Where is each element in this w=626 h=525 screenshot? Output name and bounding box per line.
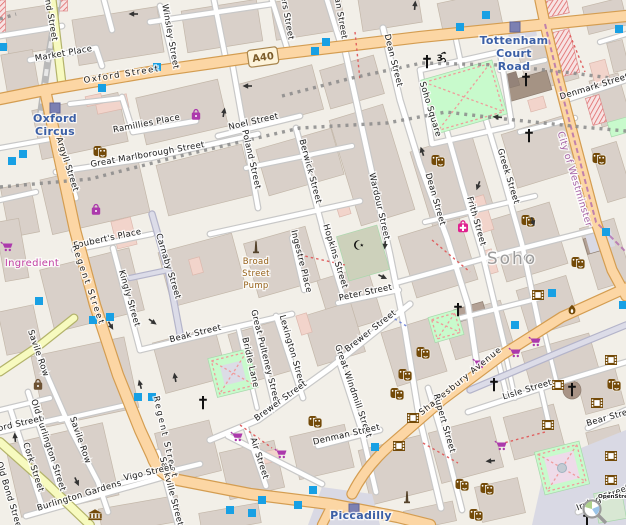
sprocket: [543, 424, 545, 426]
wheel: [235, 439, 237, 441]
sprocket: [606, 356, 608, 358]
film-frame: [608, 357, 613, 363]
sprocket: [403, 445, 405, 447]
sprocket: [533, 294, 535, 296]
film-frame: [608, 477, 613, 483]
eye: [490, 487, 492, 489]
sprocket: [403, 448, 405, 450]
entrance-marker: [602, 228, 610, 236]
eye: [573, 259, 575, 261]
sprocket: [562, 384, 564, 386]
sprocket: [606, 479, 608, 481]
entrance-marker: [258, 496, 266, 504]
eye: [405, 373, 407, 375]
sprocket: [394, 448, 396, 450]
eye: [100, 150, 102, 152]
eye: [594, 155, 596, 157]
cinema-icon: [532, 290, 544, 300]
cinema-icon: [393, 441, 405, 451]
sprocket: [408, 417, 410, 419]
entrance-marker: [619, 301, 626, 309]
sprocket: [408, 414, 410, 416]
cinema-icon: [542, 420, 554, 430]
eye: [423, 351, 425, 353]
eye: [602, 157, 604, 159]
cinema-icon: [605, 475, 617, 485]
sprocket: [417, 414, 419, 416]
eye: [310, 418, 312, 420]
wheel: [499, 448, 501, 450]
wheel: [239, 439, 241, 441]
eye: [400, 371, 402, 373]
sprocket: [417, 420, 419, 422]
sprocket: [606, 476, 608, 478]
eye: [95, 148, 97, 150]
wheel: [503, 448, 505, 450]
base: [253, 252, 259, 254]
wheel: [279, 456, 281, 458]
column: [97, 514, 99, 518]
bag-dot: [37, 385, 39, 387]
sprocket: [606, 455, 608, 457]
osm-map[interactable]: 3A40Market PlaceOxford StreetWinsley Str…: [0, 0, 626, 525]
cinema-icon: [407, 413, 419, 423]
column: [90, 514, 92, 518]
entrance-marker: [456, 23, 464, 31]
cinema-icon: [591, 398, 603, 408]
sprocket: [542, 291, 544, 293]
entrance-marker: [548, 289, 556, 297]
entrance-marker: [19, 150, 27, 158]
pri-road: [540, 0, 545, 24]
sprocket: [615, 359, 617, 361]
sprocket: [552, 424, 554, 426]
film-frame: [545, 422, 550, 428]
shop-label: Ingredient: [5, 258, 59, 269]
entrance-marker: [322, 38, 330, 46]
wheel: [533, 344, 535, 346]
sprocket: [615, 455, 617, 457]
eye: [465, 483, 467, 485]
wheel: [517, 355, 519, 357]
bag-dot: [95, 210, 97, 212]
sprocket: [606, 362, 608, 364]
sprocket: [543, 427, 545, 429]
entrance-marker: [371, 443, 379, 451]
sprocket: [592, 402, 594, 404]
sprocket: [615, 356, 617, 358]
sprocket: [615, 476, 617, 478]
eye: [103, 150, 105, 152]
sprocket: [615, 458, 617, 460]
sprocket: [606, 482, 608, 484]
eye: [400, 392, 402, 394]
eye: [318, 420, 320, 422]
eye: [614, 383, 616, 385]
entrance-marker: [482, 11, 490, 19]
sprocket: [601, 402, 603, 404]
eye: [609, 381, 611, 383]
route-badge: A40: [247, 46, 279, 67]
sprocket: [601, 405, 603, 407]
entrance-marker: [35, 297, 43, 305]
sprocket: [408, 420, 410, 422]
map-canvas[interactable]: 3A40Market PlaceOxford StreetWinsley Str…: [0, 0, 626, 525]
eye: [315, 420, 317, 422]
eye: [418, 349, 420, 351]
eye: [617, 383, 619, 385]
sprocket: [615, 362, 617, 364]
entrance-marker: [311, 47, 319, 55]
sprocket: [592, 399, 594, 401]
cinema-icon: [605, 451, 617, 461]
clinic-cross: [460, 227, 466, 229]
sprocket: [562, 387, 564, 389]
poi-label: BroadStreetPump: [242, 257, 270, 291]
eye: [471, 511, 473, 513]
film-frame: [608, 453, 613, 459]
sprocket: [543, 421, 545, 423]
sprocket: [592, 405, 594, 407]
film-frame: [594, 400, 599, 406]
cinema-icon: [552, 380, 564, 390]
place-label: Soho: [487, 249, 537, 269]
sprocket: [394, 445, 396, 447]
attribution-text[interactable]: OpenStreetMap: [598, 494, 626, 500]
eye: [476, 513, 478, 515]
stn-label: OxfordCircus: [33, 112, 77, 138]
eye: [397, 392, 399, 394]
film-frame: [410, 415, 415, 421]
sprocket: [615, 452, 617, 454]
eye: [438, 159, 440, 161]
eye: [392, 390, 394, 392]
sprocket: [552, 421, 554, 423]
cinema-icon: [605, 355, 617, 365]
stn-label: Piccadilly: [330, 509, 392, 522]
sprocket: [394, 442, 396, 444]
sprocket: [403, 442, 405, 444]
sprocket: [615, 479, 617, 481]
sprocket: [606, 452, 608, 454]
base: [88, 518, 101, 520]
entrance-marker: [226, 506, 234, 514]
eye: [482, 485, 484, 487]
wheel: [5, 249, 7, 251]
sprocket: [615, 482, 617, 484]
eye: [578, 261, 580, 263]
eye: [523, 217, 525, 219]
eye: [426, 351, 428, 353]
bag-dot: [195, 115, 197, 117]
eye: [408, 373, 410, 375]
sprocket: [553, 384, 555, 386]
column: [93, 514, 95, 518]
wheel: [513, 355, 515, 357]
sprocket: [553, 381, 555, 383]
entrance-marker: [511, 321, 519, 329]
eye: [441, 159, 443, 161]
fountain: [558, 464, 567, 473]
eye: [457, 481, 459, 483]
entrance-marker: [294, 501, 302, 509]
station-marker: [510, 22, 520, 32]
column: [100, 514, 102, 518]
entrance-marker: [98, 84, 106, 92]
sprocket: [552, 427, 554, 429]
film-frame: [396, 443, 401, 449]
sprocket: [533, 297, 535, 299]
wheel: [537, 344, 539, 346]
sprocket: [562, 381, 564, 383]
entrance-marker: [0, 43, 7, 51]
sprocket: [606, 458, 608, 460]
entrance-marker: [106, 313, 114, 321]
sprocket: [542, 294, 544, 296]
entrance-marker: [309, 486, 317, 494]
sprocket: [606, 359, 608, 361]
entrance-marker: [134, 393, 142, 401]
entrance-marker: [615, 25, 623, 33]
sprocket: [417, 417, 419, 419]
eye: [599, 157, 601, 159]
entrance-marker: [8, 157, 16, 165]
wheel: [9, 249, 11, 251]
wheel: [283, 456, 285, 458]
film-frame: [535, 292, 540, 298]
eye: [528, 219, 530, 221]
eye: [487, 487, 489, 489]
sprocket: [533, 291, 535, 293]
eye: [433, 157, 435, 159]
sprocket: [542, 297, 544, 299]
base: [404, 502, 410, 504]
eye: [462, 483, 464, 485]
eye: [479, 513, 481, 515]
sprocket: [601, 399, 603, 401]
film-frame: [555, 382, 560, 388]
eye: [581, 261, 583, 263]
entrance-marker: [248, 509, 256, 517]
